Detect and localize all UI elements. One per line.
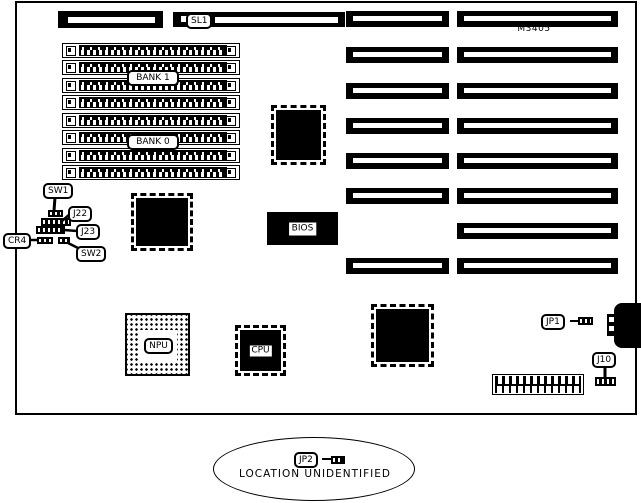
sw2-label: SW2 [76,246,106,262]
npu-socket-center: NPU [140,330,177,361]
isa-slot [457,47,618,63]
keyboard-connector [614,303,641,348]
simm-socket [62,43,240,58]
isa-slot [346,47,449,63]
simm-socket [62,148,240,163]
cr4-label: CR4 [3,233,31,249]
simm-socket [62,165,240,180]
keyboard-connector-notch [609,317,614,322]
npu-label: NPU [144,338,173,354]
top-edge-connector [58,11,163,28]
pin-header-sockets [495,384,581,393]
j10-jumper [595,377,616,386]
pin-header-connector [492,374,584,395]
jp2-label: JP2 [294,452,318,468]
sw2-switch [58,237,70,244]
cpu-chip: CPU [240,330,281,371]
isa-slot [457,188,618,204]
isa-slot [457,11,618,27]
isa-slot [457,118,618,134]
isa-slot [457,258,618,274]
sw1-switch [48,210,63,217]
pin-header-pins [495,376,581,384]
bank0-label: BANK 0 [127,134,179,150]
isa-slot [346,118,449,134]
isa-slot [346,188,449,204]
jp1-label: JP1 [541,314,565,330]
bios-chip: BIOS [267,212,338,245]
location-unidentified-note: LOCATION UNIDENTIFIED [228,468,402,480]
connector-slot-stripe [215,17,338,23]
chipset-qfp-chip [376,309,429,362]
jp1-jumper [578,317,593,325]
j10-label: J10 [592,352,616,368]
sl1-label: SL1 [186,13,212,29]
isa-slot [346,83,449,99]
isa-slot [457,153,618,169]
j23-label: J23 [76,224,100,240]
sw1-label: SW1 [43,183,73,199]
bank1-label: BANK 1 [127,70,179,86]
simm-socket [62,113,240,128]
connector-slot-stripe [68,17,155,23]
jp2-jumper-icon [331,456,345,464]
j22-header [41,218,71,226]
isa-slot [346,258,449,274]
isa-slot [346,11,449,27]
j22-label: J22 [68,206,92,222]
cpu-label: CPU [249,345,271,356]
j23-header [36,226,65,234]
cr4-component [37,237,53,244]
isa-slot [457,223,618,239]
chipset-qfp-chip [276,110,321,160]
motherboard-diagram: SL1 M3405 BANK 1 BANK 0 CPU BIOS NPU [0,0,641,503]
keyboard-connector-notch [609,326,614,331]
chipset-qfp-chip [136,198,188,246]
bios-label: BIOS [289,222,317,235]
simm-socket [62,95,240,110]
isa-slot [457,83,618,99]
isa-slot [346,153,449,169]
npu-socket: NPU [125,313,190,376]
